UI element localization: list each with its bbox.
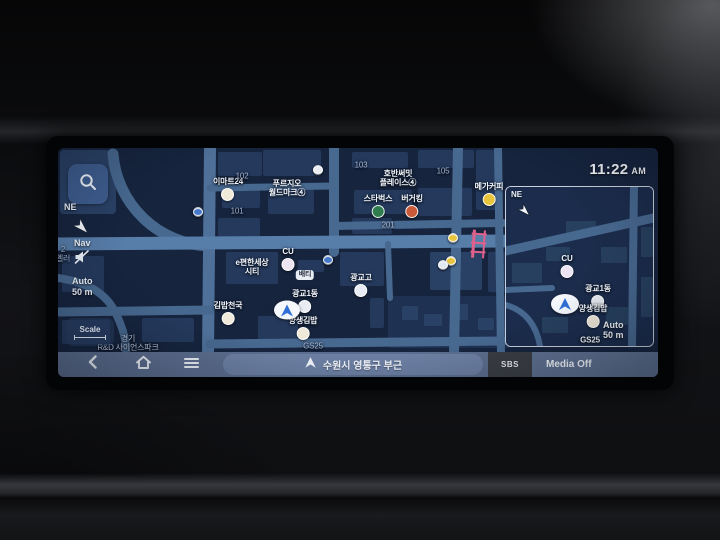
home-button[interactable] xyxy=(126,354,160,375)
minimap-auto-line2: 50 m xyxy=(603,330,624,340)
minimap-car-position-marker xyxy=(551,294,579,314)
poi-icon-info-dot-2 xyxy=(323,256,333,264)
navigation-arrow-icon xyxy=(304,356,317,374)
poi-icon-mini-yangsaeng-kimbap xyxy=(586,315,599,328)
scale-button[interactable]: Scale xyxy=(66,318,114,346)
poi-icon-gwanggyo-1dong xyxy=(298,300,311,313)
poi-icon-starbucks xyxy=(371,205,384,218)
bottom-nav-bar: 수원시 영통구 부근 SBS Media Off xyxy=(58,352,658,377)
poi-gwanggyo-high[interactable]: 광교고 xyxy=(350,273,371,297)
poi-info-dot-2 xyxy=(323,255,333,265)
poi-icon-white-marker xyxy=(438,261,448,269)
poi-label-gs25: GS25 xyxy=(303,342,323,351)
car-dashboard-photo: 이마트24푸르지오 월드마크④102101103105호반써밋 플레이스④스타벅… xyxy=(0,0,720,540)
media-status-text: Media Off xyxy=(546,359,592,370)
poi-label-gwanggyo-high: 광교고 xyxy=(350,273,371,282)
auto-scale-line2: 50 m xyxy=(72,287,93,298)
clock-time: 11:22 xyxy=(589,161,628,178)
poi-prugio-worldmark: 푸르지오 월드마크④ xyxy=(269,179,305,197)
poi-label-mini-cu: CU xyxy=(561,254,572,263)
poi-bldg-103: 103 xyxy=(355,161,368,170)
poi-mega-coffee[interactable]: 메가커피 xyxy=(475,182,504,206)
poi-label-mega-coffee: 메가커피 xyxy=(475,182,504,191)
poi-label-gwanggyo-1dong: 광교1동 xyxy=(292,289,318,298)
poi-icon-poi-dot xyxy=(313,166,323,174)
poi-edge-label: 2 벨러 xyxy=(58,245,70,263)
poi-icon-kimbap-cheonguk xyxy=(221,312,234,325)
poi-icon-info-dot-1 xyxy=(193,208,203,216)
chevron-left-icon xyxy=(87,355,99,374)
poi-icon-emart24 xyxy=(221,188,234,201)
minimap-compass: NE xyxy=(511,190,529,219)
media-source-text: SBS xyxy=(501,360,519,369)
poi-poi-dot xyxy=(313,165,323,175)
infotainment-screen: 이마트24푸르지오 월드마크④102101103105호반써밋 플레이스④스타벅… xyxy=(58,148,658,377)
poi-epyeonhansesang-city: e편한세상 시티 xyxy=(236,258,269,276)
scale-label: Scale xyxy=(80,325,101,334)
poi-camera-1 xyxy=(448,233,458,243)
poi-label-bldg-102: 102 xyxy=(236,172,249,181)
poi-label-kimbap-cheonguk: 김밥천국 xyxy=(214,301,243,310)
auto-scale-indicator: Auto 50 m xyxy=(72,276,93,298)
search-icon xyxy=(78,172,98,197)
poi-label-burgerking: 버거킹 xyxy=(401,194,422,203)
dashboard-lower-panel xyxy=(0,498,720,540)
poi-kimbap-cheonguk[interactable]: 김밥천국 xyxy=(214,301,243,325)
poi-label-hoban-summit: 호반써밋 플레이스④ xyxy=(380,169,416,187)
nav-volume-button[interactable]: Nav xyxy=(74,238,91,269)
map-search-button[interactable] xyxy=(68,164,108,204)
poi-label-baeti: 배티 xyxy=(296,270,314,280)
poi-bldg-201: 201 xyxy=(382,221,395,230)
poi-label-mini-gs25: GS25 xyxy=(580,336,600,345)
poi-hoban-summit: 호반써밋 플레이스④ xyxy=(380,169,416,187)
poi-cu[interactable]: CU xyxy=(282,247,295,271)
poi-label-starbucks: 스타벅스 xyxy=(364,194,393,203)
poi-bldg-102: 102 xyxy=(236,172,249,181)
poi-yangsaeng-kimbap[interactable]: 양생김밥 xyxy=(289,316,318,340)
poi-icon-mini-cu xyxy=(561,265,574,278)
current-location-button[interactable]: 수원시 영통구 부근 xyxy=(223,354,483,375)
scale-ruler-icon xyxy=(74,335,106,340)
auto-scale-line1: Auto xyxy=(72,276,93,287)
clock-meridiem: AM xyxy=(631,166,646,176)
poi-label-bldg-201: 201 xyxy=(382,221,395,230)
minimap-panel[interactable]: NE CU광교1동양생김밥GS25 Auto 50 m xyxy=(505,186,654,347)
poi-info-dot-1 xyxy=(193,207,203,217)
poi-emart24[interactable]: 이마트24 xyxy=(213,177,243,201)
poi-label-bldg-101: 101 xyxy=(231,207,244,216)
compass-button[interactable]: NE xyxy=(64,202,88,238)
nav-label: Nav xyxy=(74,238,91,248)
poi-label-bldg-103: 103 xyxy=(355,161,368,170)
poi-white-marker xyxy=(438,260,448,270)
menu-button[interactable] xyxy=(174,354,208,375)
poi-mini-gs25: GS25 xyxy=(580,336,600,345)
poi-icon-gwanggyo-high xyxy=(354,284,367,297)
poi-icon-yangsaeng-kimbap xyxy=(296,327,309,340)
poi-icon-mega-coffee xyxy=(482,193,495,206)
clock: 11:22AM xyxy=(589,161,646,178)
poi-starbucks[interactable]: 스타벅스 xyxy=(364,194,393,218)
poi-label-prugio-worldmark: 푸르지오 월드마크④ xyxy=(269,179,305,197)
media-status-widget[interactable]: Media Off xyxy=(532,352,658,377)
speaker-muted-icon xyxy=(74,250,90,269)
minimap-auto-line1: Auto xyxy=(603,320,624,330)
back-button[interactable] xyxy=(76,354,110,375)
poi-label-bldg-105: 105 xyxy=(437,167,450,176)
hamburger-icon xyxy=(184,356,199,374)
poi-mini-cu[interactable]: CU xyxy=(561,254,574,278)
poi-burgerking[interactable]: 버거킹 xyxy=(401,194,422,218)
compass-label: NE xyxy=(64,202,77,212)
poi-label-mini-gwanggyo-1dong: 광교1동 xyxy=(585,284,611,293)
poi-gs25: GS25 xyxy=(303,342,323,351)
home-icon xyxy=(135,355,152,375)
current-location-text: 수원시 영통구 부근 xyxy=(323,357,402,372)
poi-baeti: 배티 xyxy=(296,270,314,280)
car-position-marker xyxy=(274,301,300,320)
poi-bldg-101: 101 xyxy=(231,207,244,216)
poi-label-cu: CU xyxy=(282,247,293,256)
poi-icon-camera-1 xyxy=(448,234,458,242)
poi-label-edge-label: 2 벨러 xyxy=(58,245,70,263)
poi-label-mini-yangsaeng-kimbap: 양생김밥 xyxy=(579,304,608,313)
dashboard-trim-band xyxy=(0,474,720,498)
poi-label-epyeonhansesang-city: e편한세상 시티 xyxy=(236,258,269,276)
poi-icon-cu xyxy=(282,258,295,271)
media-source-logo[interactable]: SBS xyxy=(488,352,532,377)
poi-bldg-105: 105 xyxy=(437,167,450,176)
rail-crossing-marker xyxy=(470,230,487,259)
minimap-auto-scale: Auto 50 m xyxy=(603,320,624,340)
poi-icon-burgerking xyxy=(405,205,418,218)
